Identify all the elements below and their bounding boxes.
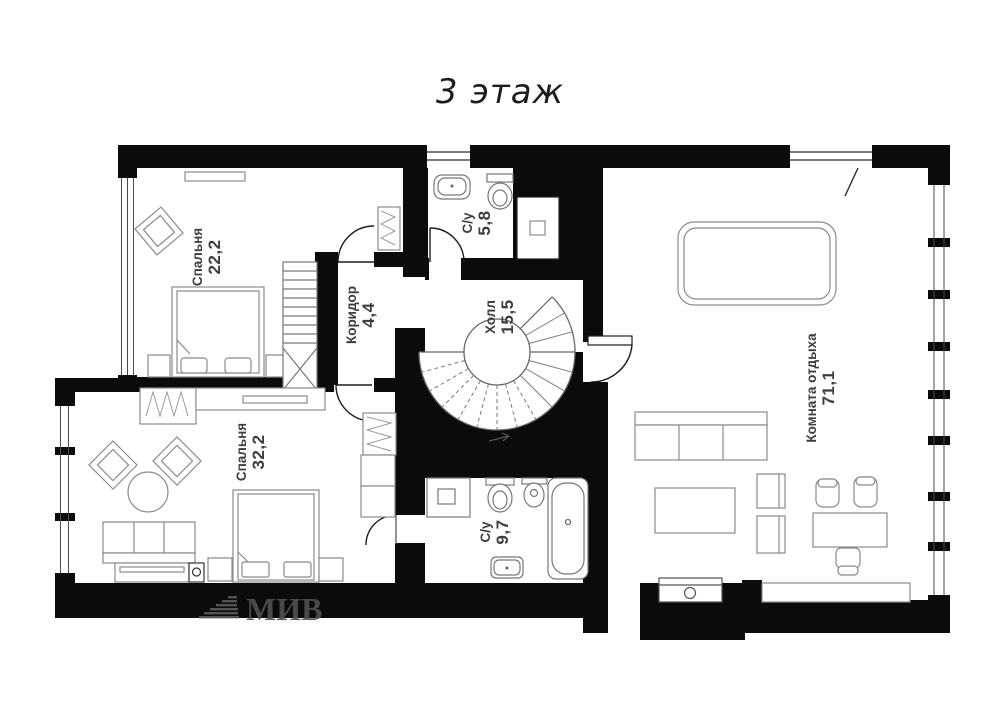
room-name: Спальня xyxy=(190,228,205,286)
pouf xyxy=(854,477,877,507)
door-bathroom-bottom xyxy=(366,515,396,545)
toilet xyxy=(486,478,514,512)
cabinet xyxy=(427,478,470,517)
round-table xyxy=(128,472,168,512)
room-name: Спальня xyxy=(234,423,249,481)
watermark-text: МИВ xyxy=(246,591,322,627)
room-label-lounge: Комната отдыха 71,1 xyxy=(804,333,838,442)
closet-hanger xyxy=(378,207,400,250)
room-area: 22,2 xyxy=(205,228,224,286)
sink xyxy=(491,557,523,578)
sofa xyxy=(103,522,195,563)
bed xyxy=(172,287,264,377)
room-area: 9,7 xyxy=(493,519,512,544)
room-name: С/у xyxy=(460,210,475,235)
furniture-bedroom-top xyxy=(135,172,400,392)
room-label-bathroom-top: С/у 5,8 xyxy=(460,210,494,235)
chair xyxy=(836,548,860,575)
nightstand xyxy=(208,558,232,581)
coffee-table xyxy=(655,488,735,533)
floor-plan-drawing: МИВ xyxy=(0,0,1000,707)
door-corridor-top xyxy=(338,226,374,262)
sink xyxy=(434,175,470,199)
door-hall-lounge xyxy=(588,336,632,382)
window-casement-line xyxy=(845,168,858,196)
nightstand xyxy=(148,355,170,377)
armchair xyxy=(135,207,183,255)
tv-console xyxy=(115,563,204,582)
armchair xyxy=(757,516,785,553)
wall-shelf xyxy=(185,172,245,181)
toilet xyxy=(487,174,513,209)
bed xyxy=(233,490,319,582)
furniture-lounge xyxy=(635,222,910,602)
straight-staircase xyxy=(283,262,317,392)
room-label-bedroom-top: Спальня 22,2 xyxy=(190,228,224,286)
floor-plan-page: 3 этаж xyxy=(0,0,1000,707)
tv-cabinet xyxy=(196,388,325,410)
pouf xyxy=(816,479,839,507)
bathtub xyxy=(548,478,588,579)
room-label-bedroom-bottom: Спальня 32,2 xyxy=(234,423,268,481)
furniture-bedroom-bottom xyxy=(89,388,396,582)
room-area: 71,1 xyxy=(819,333,838,442)
room-name: Комната отдыха xyxy=(804,333,819,442)
fireplace xyxy=(659,578,722,602)
room-name: Холл xyxy=(483,299,498,334)
sofa xyxy=(635,412,767,460)
bidet xyxy=(522,478,547,507)
room-label-hall: Холл 15,5 xyxy=(483,299,517,334)
nightstand xyxy=(319,558,343,581)
closet-hanger xyxy=(361,413,396,517)
armchair xyxy=(757,474,785,508)
room-area: 32,2 xyxy=(249,423,268,481)
room-area: 15,5 xyxy=(498,299,517,334)
room-label-bathroom-bottom: С/у 9,7 xyxy=(478,519,512,544)
billiard-table xyxy=(678,222,836,305)
table xyxy=(813,513,887,547)
room-name: С/у xyxy=(478,519,493,544)
armchair xyxy=(89,441,137,489)
room-area: 5,8 xyxy=(475,210,494,235)
room-area: 4,4 xyxy=(359,286,378,344)
room-label-corridor: Коридор 4,4 xyxy=(344,286,378,344)
low-cabinet xyxy=(762,583,910,602)
room-name: Коридор xyxy=(344,286,359,344)
ventilation-shaft xyxy=(517,197,559,259)
wardrobe-hanger xyxy=(140,388,196,424)
door-bathroom-top xyxy=(430,228,464,262)
